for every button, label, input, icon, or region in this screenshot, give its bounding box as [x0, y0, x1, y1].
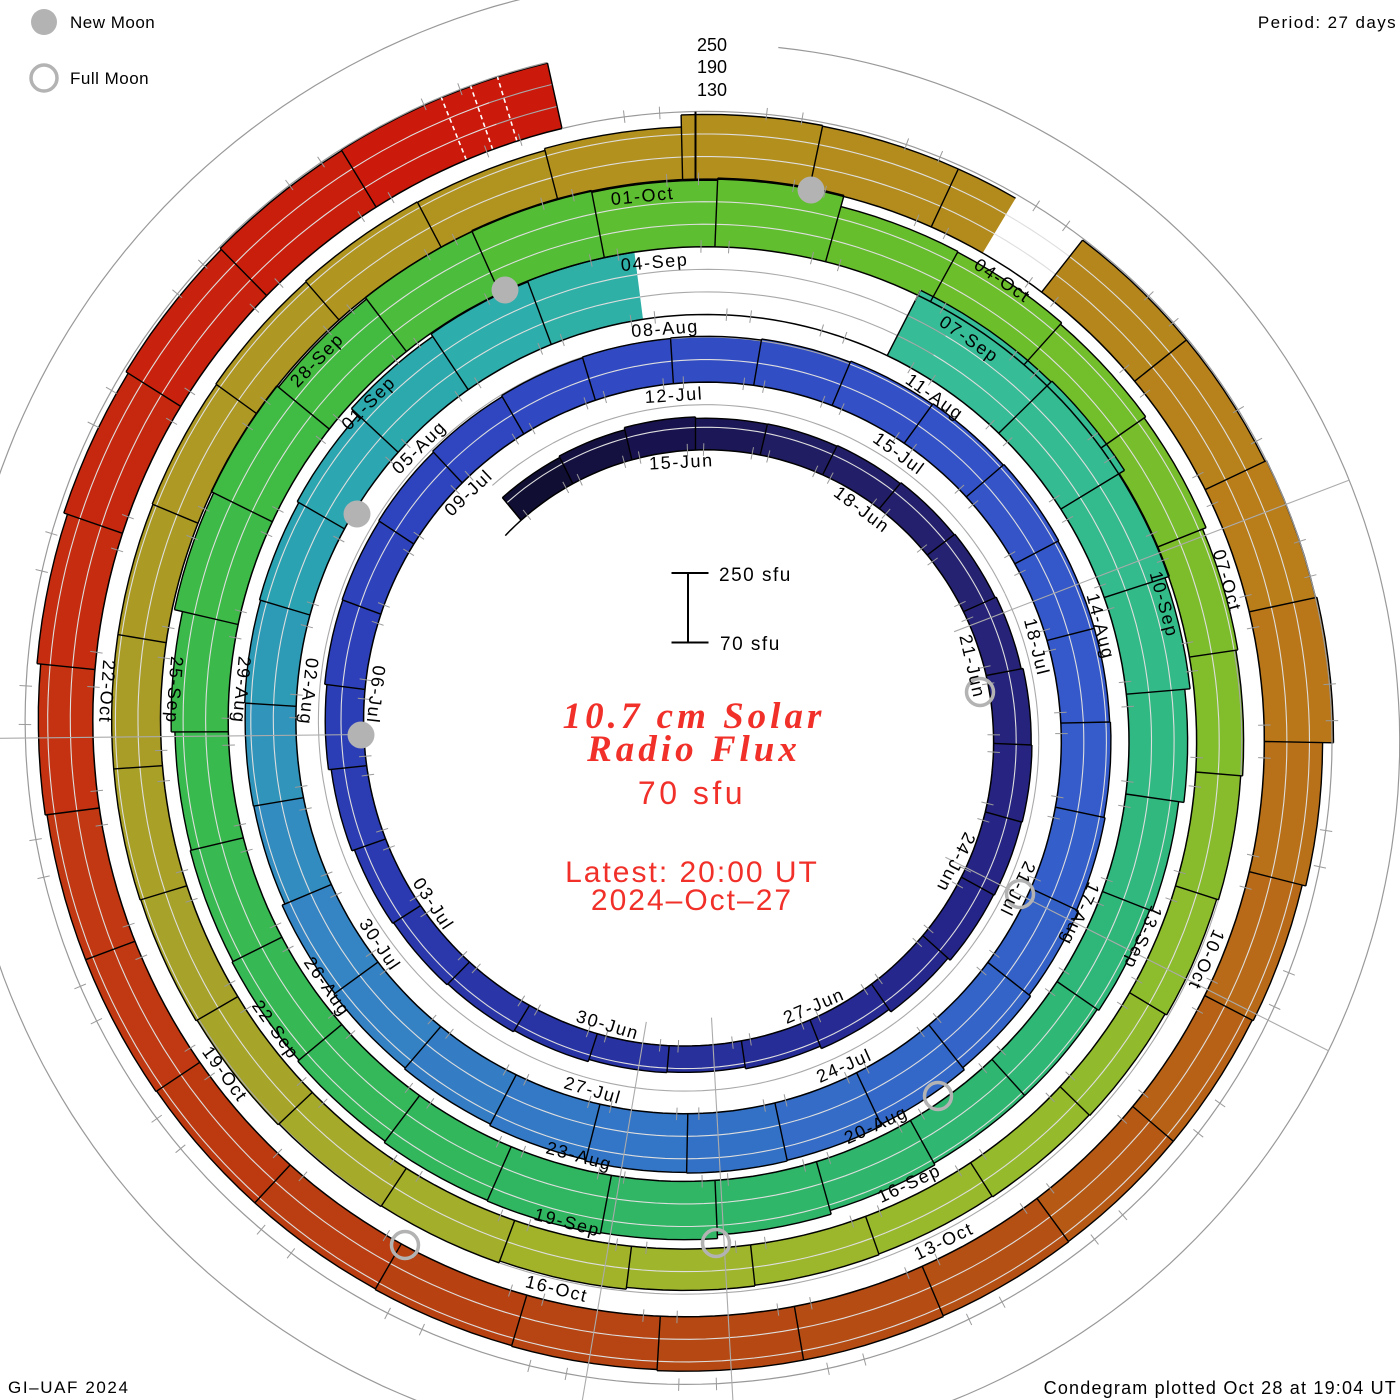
svg-text:22-Oct: 22-Oct	[95, 659, 119, 724]
svg-text:15-Jun: 15-Jun	[649, 450, 715, 473]
svg-text:Full Moon: Full Moon	[70, 69, 149, 88]
svg-text:12-Jul: 12-Jul	[644, 383, 704, 407]
svg-text:250: 250	[697, 35, 727, 55]
svg-text:70 sfu: 70 sfu	[638, 775, 746, 811]
svg-text:130: 130	[697, 80, 727, 100]
svg-text:Radio Flux: Radio Flux	[586, 729, 801, 770]
svg-text:Condegram plotted Oct 28 at 19: Condegram plotted Oct 28 at 19:04 UT	[1044, 1378, 1397, 1398]
svg-text:New Moon: New Moon	[70, 13, 155, 32]
svg-text:70 sfu: 70 sfu	[720, 634, 781, 655]
svg-text:GI–UAF 2024: GI–UAF 2024	[8, 1378, 130, 1397]
svg-text:2024–Oct–27: 2024–Oct–27	[591, 884, 793, 917]
svg-text:190: 190	[697, 57, 727, 77]
svg-text:250 sfu: 250 sfu	[719, 565, 792, 586]
svg-text:Period: 27 days: Period: 27 days	[1258, 13, 1397, 32]
